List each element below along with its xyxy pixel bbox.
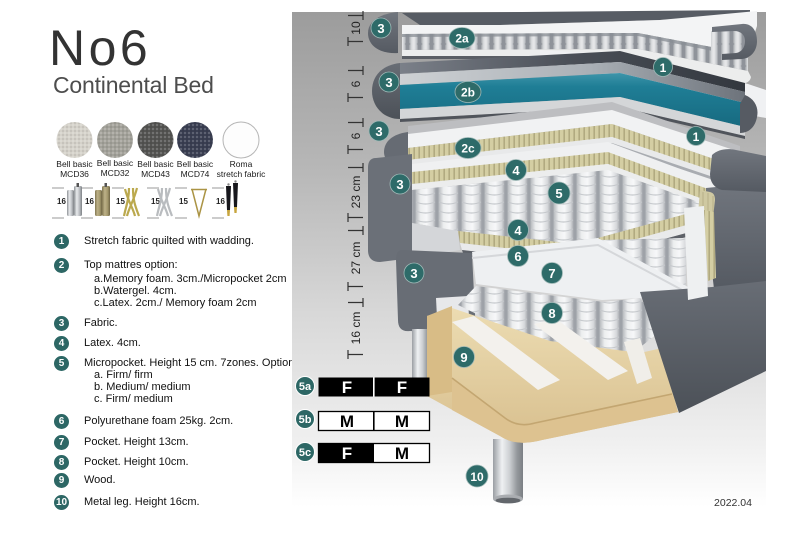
svg-text:10: 10 <box>349 21 363 35</box>
svg-text:8: 8 <box>548 306 555 321</box>
svg-text:F: F <box>342 378 352 397</box>
svg-text:23 cm: 23 cm <box>349 176 363 209</box>
svg-text:5c: 5c <box>299 447 311 459</box>
svg-text:5b: 5b <box>299 414 312 426</box>
svg-text:M: M <box>395 444 409 463</box>
svg-text:3: 3 <box>410 266 417 281</box>
svg-text:2a: 2a <box>455 32 469 46</box>
svg-text:4: 4 <box>514 223 522 238</box>
svg-text:27 cm: 27 cm <box>349 242 363 275</box>
svg-text:4: 4 <box>512 163 520 178</box>
svg-text:6: 6 <box>349 132 363 139</box>
svg-text:F: F <box>397 378 407 397</box>
svg-text:3: 3 <box>377 21 384 36</box>
svg-text:5: 5 <box>555 186 562 201</box>
svg-text:6: 6 <box>514 249 521 264</box>
svg-text:3: 3 <box>396 177 403 192</box>
svg-text:1: 1 <box>693 130 700 144</box>
svg-text:6: 6 <box>349 80 363 87</box>
svg-text:1: 1 <box>660 61 667 75</box>
svg-text:M: M <box>340 412 354 431</box>
svg-text:3: 3 <box>375 124 382 139</box>
svg-text:M: M <box>395 412 409 431</box>
svg-text:7: 7 <box>548 266 555 281</box>
svg-text:F: F <box>342 444 352 463</box>
svg-text:2b: 2b <box>461 86 475 100</box>
svg-text:5a: 5a <box>299 381 312 393</box>
svg-text:3: 3 <box>385 75 392 90</box>
svg-text:2c: 2c <box>461 142 475 156</box>
svg-text:16 cm: 16 cm <box>349 312 363 345</box>
svg-text:9: 9 <box>460 350 467 365</box>
svg-text:2022.04: 2022.04 <box>714 497 752 509</box>
svg-text:10: 10 <box>470 470 484 484</box>
